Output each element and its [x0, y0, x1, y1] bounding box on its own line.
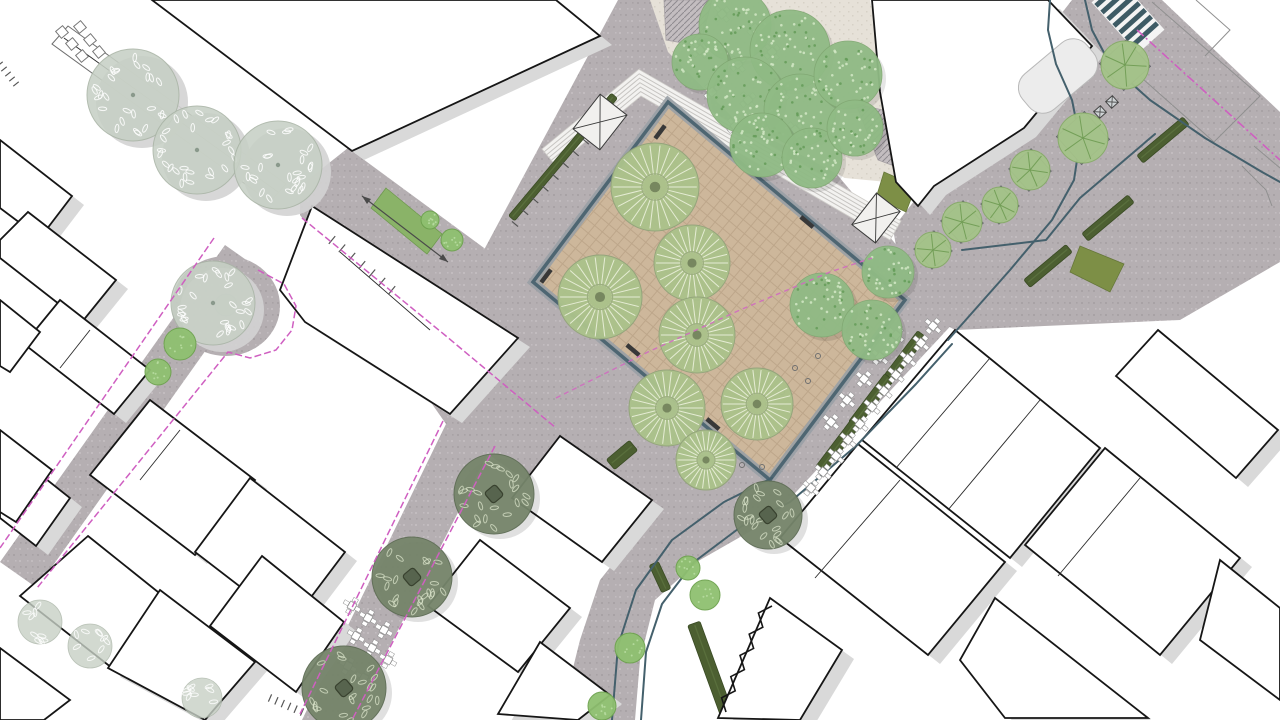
speckle [710, 57, 713, 60]
speckle [825, 168, 828, 171]
speckle [428, 219, 430, 221]
speckle [776, 136, 779, 139]
speckle [812, 58, 815, 61]
speckle [704, 588, 706, 590]
speckle [814, 93, 817, 96]
speckle [706, 595, 708, 597]
speckle [805, 283, 808, 286]
speckle [743, 141, 746, 144]
speckle [871, 60, 874, 63]
speckle [852, 145, 855, 148]
speckle [165, 367, 167, 369]
speckle [852, 349, 855, 352]
speckle [842, 308, 845, 311]
speckle [698, 601, 700, 603]
plaza-tree-radial [558, 255, 642, 339]
speckle [898, 291, 901, 294]
speckle [732, 144, 735, 147]
speckle [795, 303, 798, 306]
speckle [868, 66, 871, 69]
building [0, 300, 40, 372]
plaza-tree-radial [659, 297, 735, 373]
speckle [784, 115, 787, 118]
speckle [757, 117, 760, 120]
speckle [813, 116, 816, 119]
speckle [875, 125, 878, 128]
speckle [851, 74, 854, 77]
context-tree-large [234, 121, 331, 216]
speckle [749, 165, 752, 168]
tick-mark [268, 694, 271, 701]
tree-trunk [687, 258, 696, 267]
speckle [871, 118, 874, 121]
speckle [715, 18, 718, 21]
speckle [810, 52, 813, 55]
speckle [866, 326, 869, 329]
speckle [794, 46, 797, 49]
speckle [803, 52, 806, 55]
speckle [631, 655, 633, 657]
speckle [871, 129, 874, 132]
speckle [887, 249, 890, 252]
speckle [831, 296, 834, 299]
speckle [837, 110, 840, 113]
speckle [868, 348, 871, 351]
speckle [755, 105, 758, 108]
speckle [880, 313, 883, 316]
speckle [830, 88, 833, 91]
speckle [705, 30, 708, 33]
speckle [752, 78, 755, 81]
plaza-tree-radial [611, 143, 699, 231]
speckle [827, 282, 830, 285]
speckle [865, 310, 868, 313]
speckle [754, 13, 757, 16]
speckle [799, 68, 802, 71]
plaza-tree-radial [721, 368, 793, 440]
speckle [889, 251, 892, 254]
speckle [805, 31, 808, 34]
speckle [859, 333, 862, 336]
speckle [687, 49, 690, 52]
speckle [739, 141, 742, 144]
speckle [820, 279, 823, 282]
site-plan-canvas [0, 0, 1280, 720]
speckle [768, 134, 771, 137]
speckle [716, 113, 719, 116]
speckle [859, 129, 862, 132]
speckle [701, 39, 704, 42]
speckle [434, 214, 436, 216]
speckle [683, 44, 686, 47]
speckle [723, 82, 726, 85]
speckle [812, 38, 815, 41]
speckle [453, 237, 455, 239]
speckle [678, 566, 680, 568]
speckle [876, 287, 879, 290]
speckle [157, 362, 159, 364]
speckle [866, 96, 869, 99]
speckle [782, 96, 785, 99]
speckle [735, 120, 738, 123]
speckle [867, 280, 870, 283]
speckle [864, 344, 867, 347]
speckle [813, 281, 816, 284]
speckle [765, 115, 768, 118]
tick-mark [13, 82, 18, 86]
speckle [884, 327, 887, 330]
speckle [796, 112, 799, 115]
small-tree [164, 328, 196, 360]
speckle [784, 31, 787, 34]
speckle [868, 268, 871, 271]
speckle [780, 93, 783, 96]
speckle [796, 96, 799, 99]
tick-mark [0, 62, 3, 66]
speckle [850, 130, 853, 133]
speckle [882, 339, 885, 342]
speckle [793, 152, 796, 155]
speckle [774, 154, 777, 157]
speckle [827, 159, 830, 162]
speckle [865, 333, 868, 336]
speckle [707, 48, 710, 51]
speckle [729, 103, 732, 106]
speckle [733, 13, 736, 16]
speckle [811, 92, 814, 95]
speckle [830, 97, 833, 100]
speckle [725, 75, 728, 78]
speckle [717, 75, 720, 78]
speckle [804, 95, 807, 98]
speckle [807, 154, 810, 157]
speckle [734, 31, 737, 34]
speckle [721, 31, 724, 34]
speckle [755, 150, 758, 153]
speckle [787, 45, 790, 48]
speckle [691, 64, 694, 67]
speckle [809, 98, 812, 101]
speckle [855, 90, 858, 93]
tree-trunk [131, 93, 135, 97]
speckle [894, 281, 897, 284]
speckle [796, 143, 799, 146]
small-tree [145, 359, 171, 385]
speckle [706, 26, 709, 29]
speckle [839, 302, 842, 305]
speckle [796, 316, 799, 319]
tick-mark [275, 697, 278, 704]
speckle [698, 70, 701, 73]
speckle [641, 647, 643, 649]
speckle [181, 336, 183, 338]
speckle [832, 130, 835, 133]
speckle [737, 72, 740, 75]
speckle [754, 135, 757, 138]
speckle [780, 83, 783, 86]
speckle [174, 350, 176, 352]
speckle [869, 59, 872, 62]
speckle [435, 221, 437, 223]
speckle [813, 133, 816, 136]
speckle [823, 295, 826, 298]
speckle [867, 136, 870, 139]
speckle [763, 13, 766, 16]
speckle [865, 83, 868, 86]
speckle [690, 42, 693, 45]
tick-mark [5, 72, 10, 76]
speckle [849, 151, 852, 154]
speckle [892, 346, 895, 349]
speckle [813, 178, 816, 181]
speckle [863, 58, 866, 61]
speckle [155, 373, 157, 375]
speckle [834, 317, 837, 320]
speckle [839, 286, 842, 289]
speckle [639, 650, 641, 652]
speckle [838, 299, 841, 302]
speckle [825, 55, 828, 58]
speckle [169, 347, 171, 349]
speckle [832, 127, 835, 130]
speckle [861, 67, 864, 70]
speckle [684, 558, 686, 560]
speckle [445, 242, 447, 244]
speckle [778, 35, 781, 38]
speckle [780, 24, 783, 27]
speckle [714, 4, 717, 7]
speckle [681, 561, 683, 563]
speckle [763, 138, 766, 141]
speckle [824, 284, 827, 287]
speckle [755, 44, 758, 47]
speckle [831, 74, 834, 77]
speckle [819, 135, 822, 138]
speckle [732, 94, 735, 97]
speckle [860, 323, 863, 326]
speckle [714, 48, 717, 51]
speckle [742, 110, 745, 113]
speckle [859, 145, 862, 148]
context-tree-small [68, 624, 112, 668]
speckle [799, 51, 802, 54]
speckle [825, 276, 828, 279]
speckle [826, 288, 829, 291]
speckle [683, 567, 685, 569]
speckle [675, 55, 678, 58]
context-tree-small [18, 600, 62, 645]
speckle [839, 82, 842, 85]
speckle [748, 20, 751, 23]
speckle [720, 80, 723, 83]
speckle [737, 27, 740, 30]
speckle [689, 561, 691, 563]
speckle [601, 704, 603, 706]
speckle [818, 80, 821, 83]
speckle [157, 377, 159, 379]
speckle [688, 46, 691, 49]
speckle [802, 122, 805, 125]
speckle [820, 111, 823, 114]
speckle [872, 339, 875, 342]
speckle [633, 643, 635, 645]
speckle [736, 111, 739, 114]
speckle [838, 282, 841, 285]
speckle [761, 128, 764, 131]
tick-mark [1, 67, 6, 71]
speckle [824, 140, 827, 143]
speckle [839, 295, 842, 298]
speckle [837, 99, 840, 102]
speckle [854, 133, 857, 136]
small-tree [421, 211, 439, 229]
speckle [888, 284, 891, 287]
speckle [799, 148, 802, 151]
speckle [698, 75, 701, 78]
speckle [832, 164, 835, 167]
speckle [624, 651, 626, 653]
speckle [636, 639, 638, 641]
speckle [810, 301, 813, 304]
speckle [694, 40, 697, 43]
speckle [796, 78, 799, 81]
speckle [887, 343, 890, 346]
speckle [889, 335, 892, 338]
speckle [857, 50, 860, 53]
speckle [702, 596, 704, 598]
speckle [823, 177, 826, 180]
speckle [845, 58, 848, 61]
speckle [797, 288, 800, 291]
speckle [759, 81, 762, 84]
speckle [714, 41, 717, 44]
speckle [759, 63, 762, 66]
speckle [850, 144, 853, 147]
tree-canopy [164, 328, 196, 360]
speckle [863, 144, 866, 147]
speckle [873, 142, 876, 145]
speckle [772, 40, 775, 43]
speckle [775, 31, 778, 34]
speckle [638, 652, 640, 654]
speckle [689, 54, 692, 57]
tree-canopy [827, 100, 883, 156]
speckle [868, 276, 871, 279]
speckle [861, 334, 864, 337]
speckle [812, 22, 815, 25]
speckle [825, 88, 828, 91]
speckle [785, 34, 788, 37]
speckle [829, 155, 832, 158]
speckle [749, 27, 752, 30]
speckle [859, 87, 862, 90]
speckle [828, 92, 831, 95]
speckle [805, 296, 808, 299]
speckle [882, 321, 885, 324]
speckle [820, 170, 823, 173]
speckle [820, 307, 823, 310]
tree-trunk [662, 403, 671, 412]
speckle [824, 173, 827, 176]
speckle [895, 341, 898, 344]
speckle [909, 271, 912, 274]
speckle [908, 281, 911, 284]
speckle [742, 9, 745, 12]
speckle [726, 95, 729, 98]
speckle [696, 73, 699, 76]
speckle [793, 150, 796, 153]
speckle [893, 252, 896, 255]
speckle [839, 291, 842, 294]
speckle [679, 59, 682, 62]
speckle [794, 170, 797, 173]
speckle [888, 318, 891, 321]
speckle [807, 317, 810, 320]
speckle [838, 67, 841, 70]
speckle [681, 68, 684, 71]
speckle [845, 63, 848, 66]
tree-canopy [690, 580, 720, 610]
speckle [892, 263, 895, 266]
speckle [770, 63, 773, 66]
lane-tree-large [734, 481, 808, 554]
speckle [779, 106, 782, 109]
speckle [823, 318, 826, 321]
speckle [693, 573, 695, 575]
speckle [815, 327, 818, 330]
speckle [774, 16, 777, 19]
speckle [684, 40, 687, 43]
speckle [715, 96, 718, 99]
speckle [841, 64, 844, 67]
speckle [768, 36, 771, 39]
speckle [729, 29, 732, 32]
speckle [867, 304, 870, 307]
speckle [805, 112, 808, 115]
speckle [878, 282, 881, 285]
speckle [885, 351, 888, 354]
speckle [697, 585, 699, 587]
tree-trunk [692, 330, 701, 339]
tree-trunk [195, 148, 199, 152]
speckle [443, 242, 445, 244]
speckle [455, 241, 457, 243]
speckle [794, 31, 797, 34]
speckle [798, 24, 801, 27]
speckle [893, 273, 896, 276]
speckle [600, 710, 602, 712]
speckle [777, 113, 780, 116]
speckle [447, 245, 449, 247]
speckle [712, 68, 715, 71]
tree-trunk [753, 400, 762, 409]
speckle [153, 377, 155, 379]
speckle [844, 114, 847, 117]
speckle [432, 224, 434, 226]
speckle [793, 23, 796, 26]
speckle [770, 42, 773, 45]
speckle [797, 309, 800, 312]
speckle [871, 83, 874, 86]
small-tree [690, 580, 720, 610]
speckle [604, 706, 606, 708]
tick-mark [294, 706, 297, 713]
speckle [843, 136, 846, 139]
speckle [745, 12, 748, 15]
speckle [190, 345, 192, 347]
speckle [801, 20, 804, 23]
speckle [180, 344, 182, 346]
